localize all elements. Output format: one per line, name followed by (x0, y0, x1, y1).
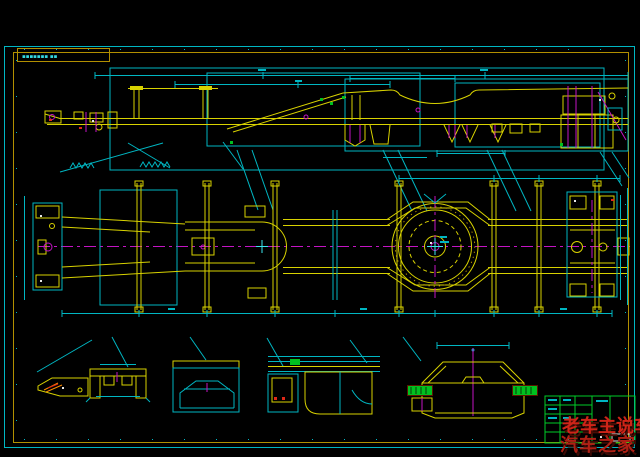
weld-callout-right (512, 385, 538, 396)
turntable-ring (392, 194, 478, 298)
detail-axle-seat (407, 342, 538, 418)
section-details (38, 342, 538, 418)
sheet-label-box: ▪▪▪▪▪▪▪ ▪▪ (18, 49, 110, 62)
cad-drawing: ▪▪▪▪▪▪▪ ▪▪ (0, 0, 640, 457)
plan-view (25, 175, 631, 372)
sheet-label-text: ▪▪▪▪▪▪▪ ▪▪ (22, 54, 58, 60)
detail-equalizer-bracket (268, 357, 380, 415)
rear-bolster (567, 192, 617, 297)
detail-channel-bracket (86, 365, 150, 403)
rear-hitch-assembly (561, 86, 626, 148)
detail-hat-section (173, 361, 239, 412)
drawbar-eye (45, 111, 61, 123)
weld-callout-left (407, 385, 433, 396)
detail-spring-end (38, 378, 88, 396)
watermark-line2: 汽车之家 (560, 431, 636, 457)
cad-drawing-canvas: ▪▪▪▪▪▪▪ ▪▪ (0, 0, 640, 457)
